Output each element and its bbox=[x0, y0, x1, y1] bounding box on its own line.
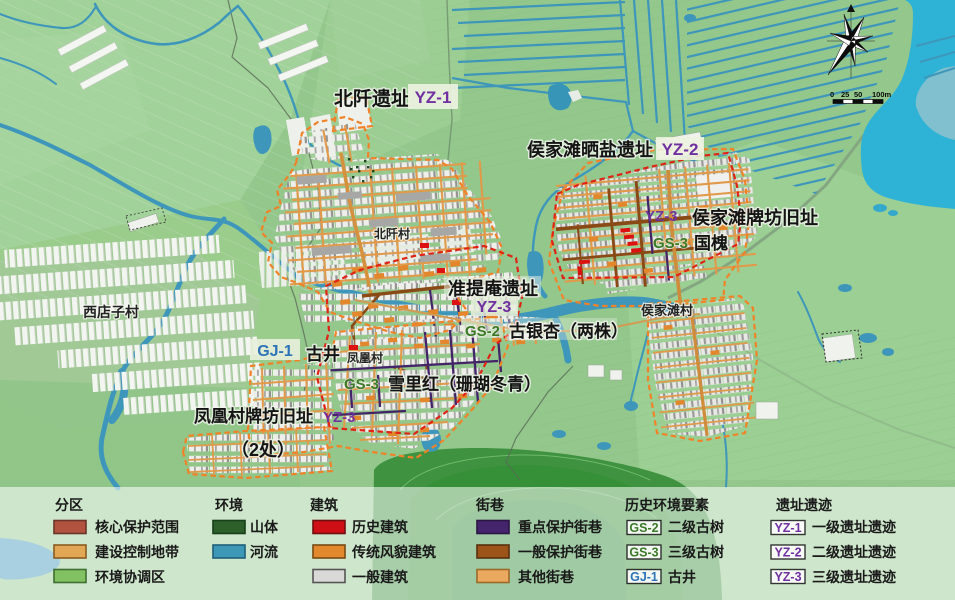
svg-text:建设控制地带: 建设控制地带 bbox=[95, 544, 179, 560]
svg-text:GS-3: GS-3 bbox=[653, 235, 688, 252]
svg-text:100m: 100m bbox=[872, 90, 892, 99]
svg-text:历史建筑: 历史建筑 bbox=[352, 519, 408, 535]
svg-text:侯家滩村: 侯家滩村 bbox=[641, 303, 693, 318]
svg-text:核心保护范围: 核心保护范围 bbox=[95, 519, 179, 535]
svg-text:传统风貌建筑: 传统风貌建筑 bbox=[351, 544, 436, 560]
svg-text:YZ-1: YZ-1 bbox=[415, 88, 452, 107]
svg-text:准提庵遗址: 准提庵遗址 bbox=[448, 278, 538, 299]
svg-text:分区: 分区 bbox=[55, 497, 83, 513]
svg-text:YZ-3: YZ-3 bbox=[774, 570, 801, 584]
svg-text:古井: 古井 bbox=[306, 344, 340, 364]
svg-text:遗址遗迹: 遗址遗迹 bbox=[775, 497, 832, 513]
svg-text:侯家滩牌坊旧址: 侯家滩牌坊旧址 bbox=[692, 207, 818, 228]
svg-text:YZ-3: YZ-3 bbox=[645, 208, 678, 225]
svg-text:古银杏（两株）: 古银杏（两株） bbox=[509, 321, 628, 341]
svg-text:GJ-1: GJ-1 bbox=[630, 570, 658, 584]
svg-text:北阡遗址: 北阡遗址 bbox=[334, 88, 410, 110]
svg-text:雪里红（珊瑚冬青）: 雪里红（珊瑚冬青） bbox=[388, 374, 541, 394]
svg-text:（2处）: （2处） bbox=[231, 439, 295, 460]
svg-text:YZ-2: YZ-2 bbox=[662, 140, 699, 159]
svg-text:GS-3: GS-3 bbox=[629, 546, 658, 560]
svg-text:YZ-1: YZ-1 bbox=[774, 521, 801, 535]
svg-text:凤凰村: 凤凰村 bbox=[347, 350, 383, 365]
svg-text:二级古树: 二级古树 bbox=[668, 519, 724, 535]
svg-text:河流: 河流 bbox=[250, 544, 278, 560]
svg-text:古井: 古井 bbox=[668, 569, 696, 585]
svg-text:YZ-3: YZ-3 bbox=[323, 409, 356, 426]
svg-text:山体: 山体 bbox=[250, 519, 279, 535]
svg-text:国槐: 国槐 bbox=[694, 233, 728, 253]
svg-text:一般建筑: 一般建筑 bbox=[352, 569, 408, 585]
svg-text:二级遗址遗迹: 二级遗址遗迹 bbox=[812, 544, 896, 560]
svg-text:凤凰村牌坊旧址: 凤凰村牌坊旧址 bbox=[194, 406, 313, 426]
svg-text:三级古树: 三级古树 bbox=[668, 544, 724, 560]
svg-text:GS-2: GS-2 bbox=[629, 521, 658, 535]
svg-text:其他街巷: 其他街巷 bbox=[518, 569, 575, 585]
svg-text:西店子村: 西店子村 bbox=[83, 304, 139, 320]
svg-text:YZ-3: YZ-3 bbox=[477, 299, 512, 316]
svg-text:GJ-1: GJ-1 bbox=[257, 343, 293, 360]
svg-text:GS-2: GS-2 bbox=[465, 323, 500, 340]
svg-text:GS-3: GS-3 bbox=[344, 376, 379, 393]
svg-text:历史环境要素: 历史环境要素 bbox=[625, 497, 709, 513]
svg-text:25: 25 bbox=[841, 90, 849, 99]
svg-text:建筑: 建筑 bbox=[310, 497, 338, 513]
svg-text:环境: 环境 bbox=[215, 497, 243, 513]
svg-text:一级遗址遗迹: 一级遗址遗迹 bbox=[812, 519, 896, 535]
svg-text:0: 0 bbox=[830, 90, 834, 99]
svg-text:环境协调区: 环境协调区 bbox=[95, 569, 165, 585]
svg-text:50: 50 bbox=[854, 90, 862, 99]
svg-text:北阡村: 北阡村 bbox=[374, 226, 410, 241]
svg-text:三级遗址遗迹: 三级遗址遗迹 bbox=[812, 569, 896, 585]
svg-text:重点保护街巷: 重点保护街巷 bbox=[518, 519, 603, 535]
svg-text:YZ-2: YZ-2 bbox=[774, 546, 801, 560]
svg-text:一般保护街巷: 一般保护街巷 bbox=[518, 544, 603, 560]
svg-text:侯家滩晒盐遗址: 侯家滩晒盐遗址 bbox=[527, 139, 653, 160]
svg-text:街巷: 街巷 bbox=[475, 497, 505, 513]
